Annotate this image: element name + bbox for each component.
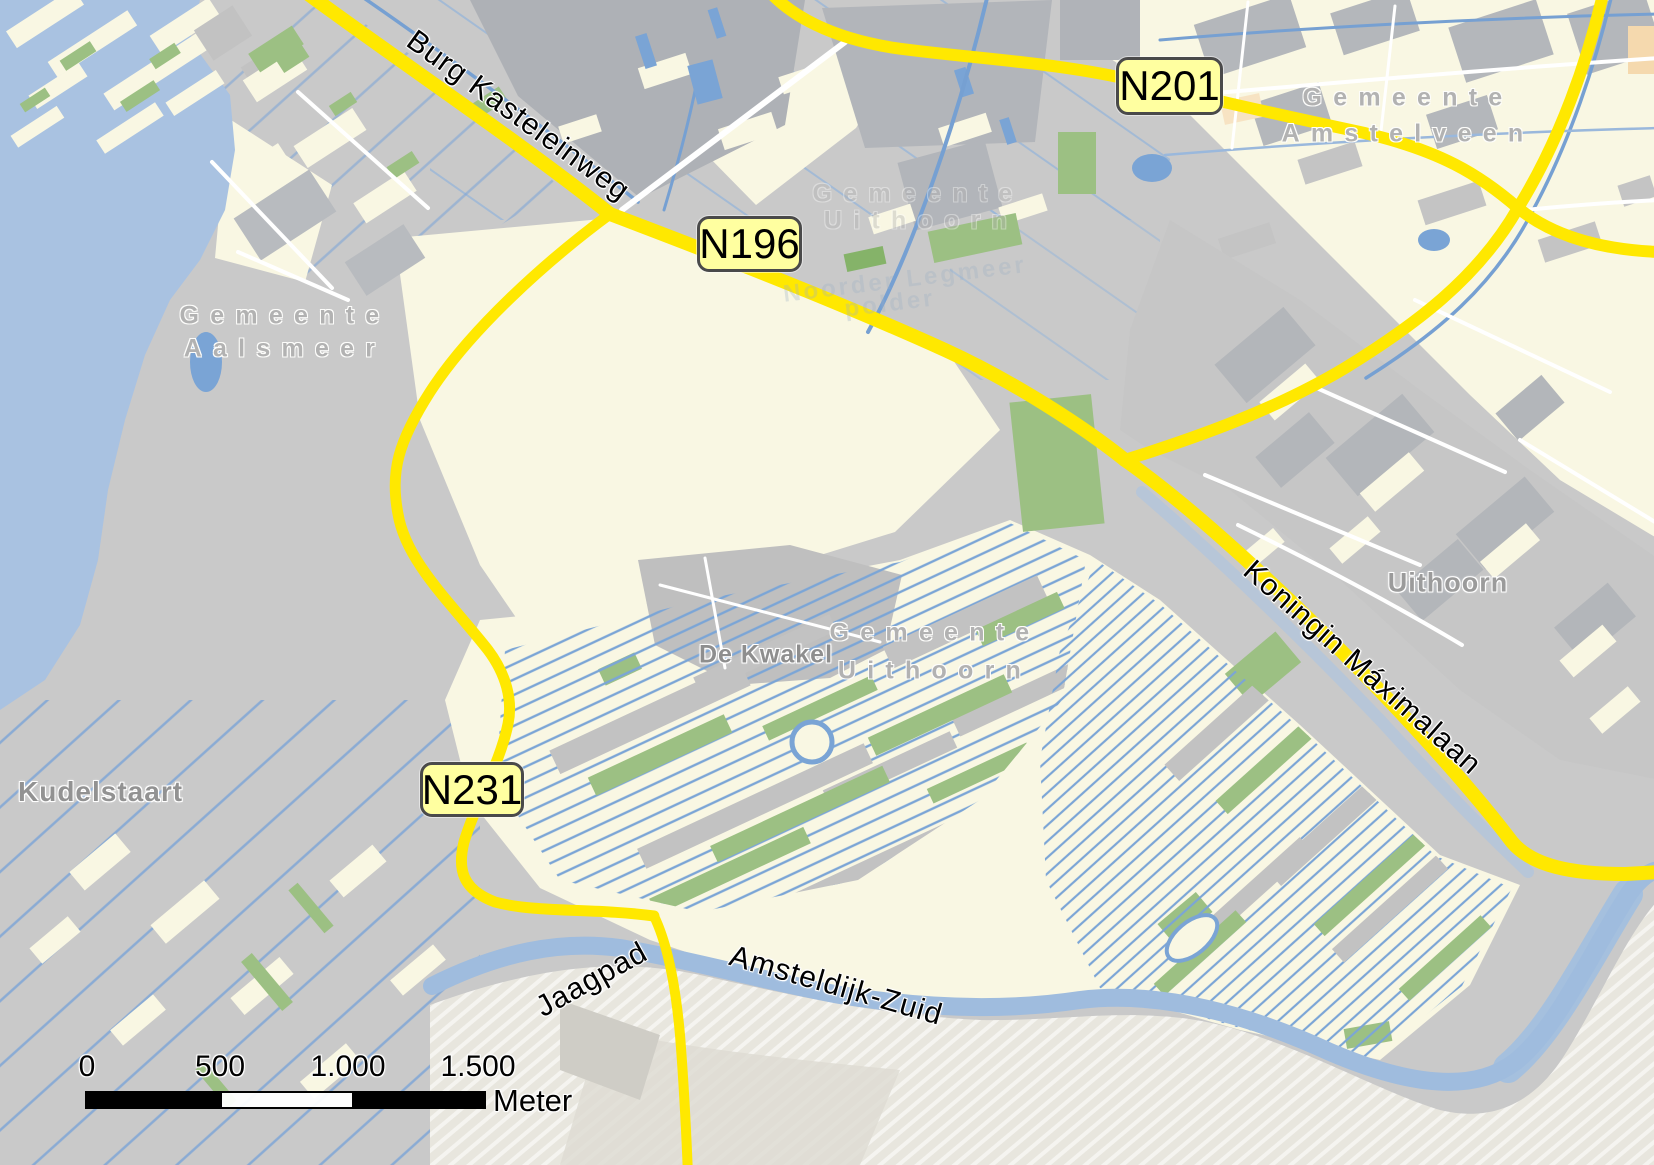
map-canvas[interactable] <box>0 0 1654 1165</box>
map-viewport: Gemeente Uithoorn Noorder Legmeer polder… <box>0 0 1654 1165</box>
